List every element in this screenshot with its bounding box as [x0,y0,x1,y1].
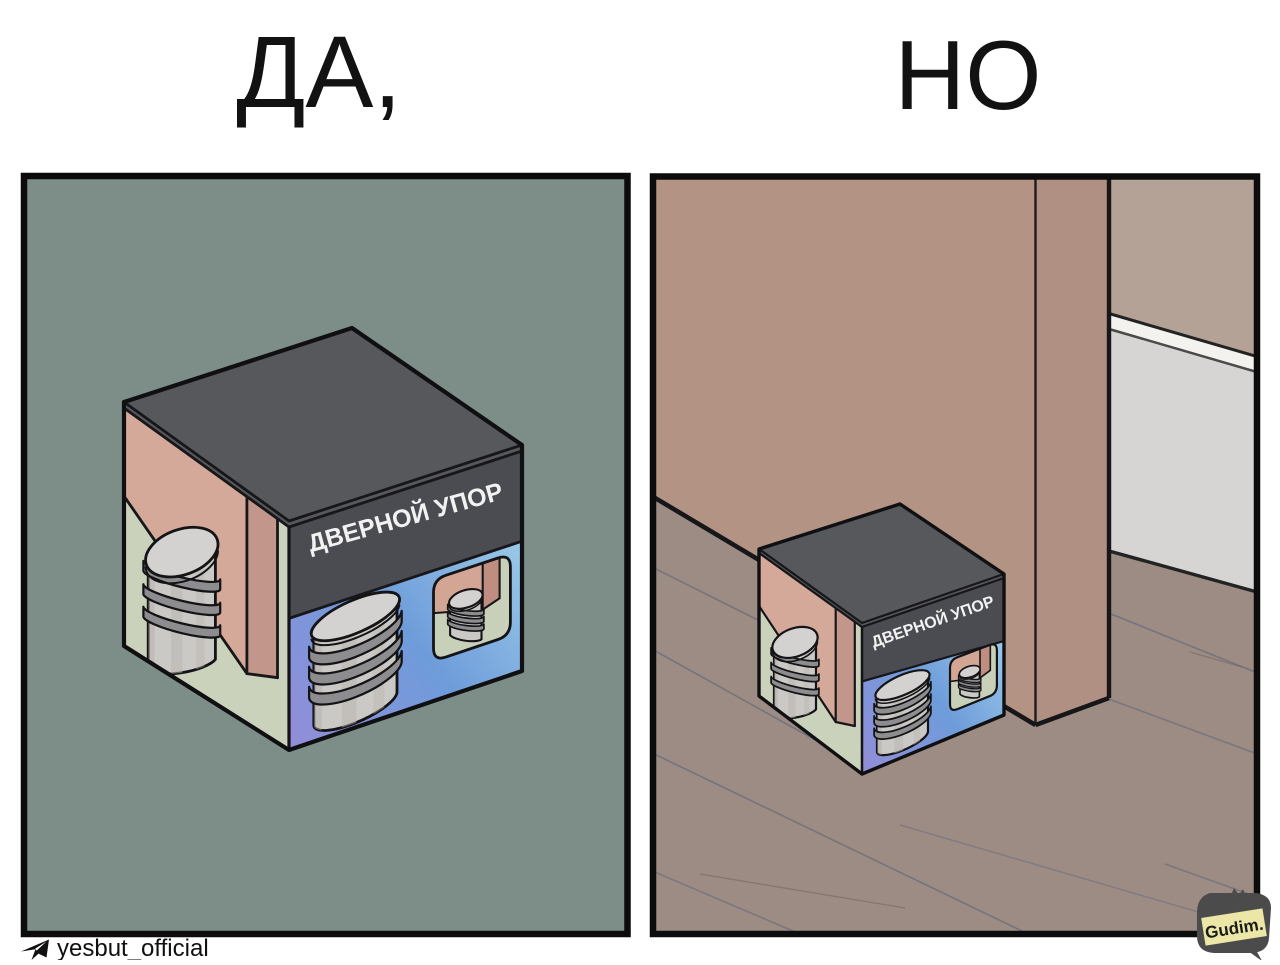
svg-text:yesbut_official: yesbut_official [57,935,209,960]
svg-text:НО: НО [895,20,1042,130]
svg-text:ДА,: ДА, [236,15,401,129]
